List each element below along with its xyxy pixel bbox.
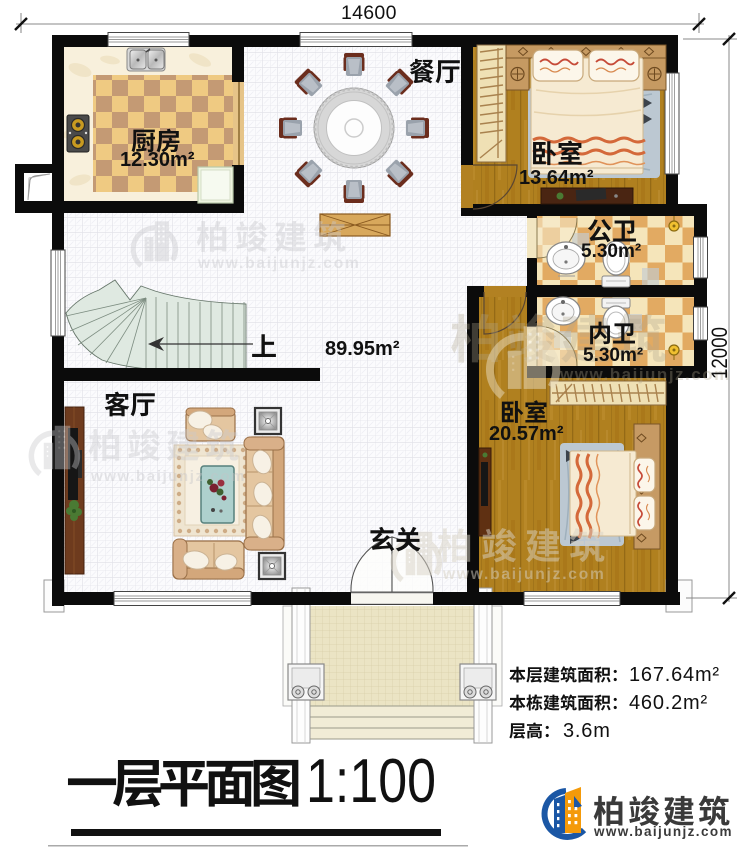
svg-text:12000: 12000 (707, 327, 732, 379)
svg-text:460.2m²: 460.2m² (629, 692, 708, 714)
svg-text:13.64m²: 13.64m² (519, 167, 594, 189)
svg-text:5.30m²: 5.30m² (581, 241, 641, 262)
svg-text:www.baijunjz.com: www.baijunjz.com (90, 468, 246, 485)
svg-text:167.64m²: 167.64m² (629, 664, 720, 686)
svg-text:89.95m²: 89.95m² (325, 338, 400, 360)
svg-text:1:100: 1:100 (306, 747, 436, 816)
svg-text:12.30m²: 12.30m² (120, 149, 195, 171)
svg-text:www.baijunjz.com: www.baijunjz.com (197, 255, 361, 272)
svg-text:www.baijunjz.com: www.baijunjz.com (559, 365, 731, 384)
svg-text:14600: 14600 (341, 2, 397, 24)
svg-text:20.57m²: 20.57m² (489, 423, 564, 445)
svg-text:www.baijunjz.com: www.baijunjz.com (442, 566, 606, 583)
svg-text:3.6m: 3.6m (563, 720, 611, 742)
svg-text:5.30m²: 5.30m² (583, 345, 643, 366)
svg-text:www.baijunjz.com: www.baijunjz.com (593, 824, 733, 839)
